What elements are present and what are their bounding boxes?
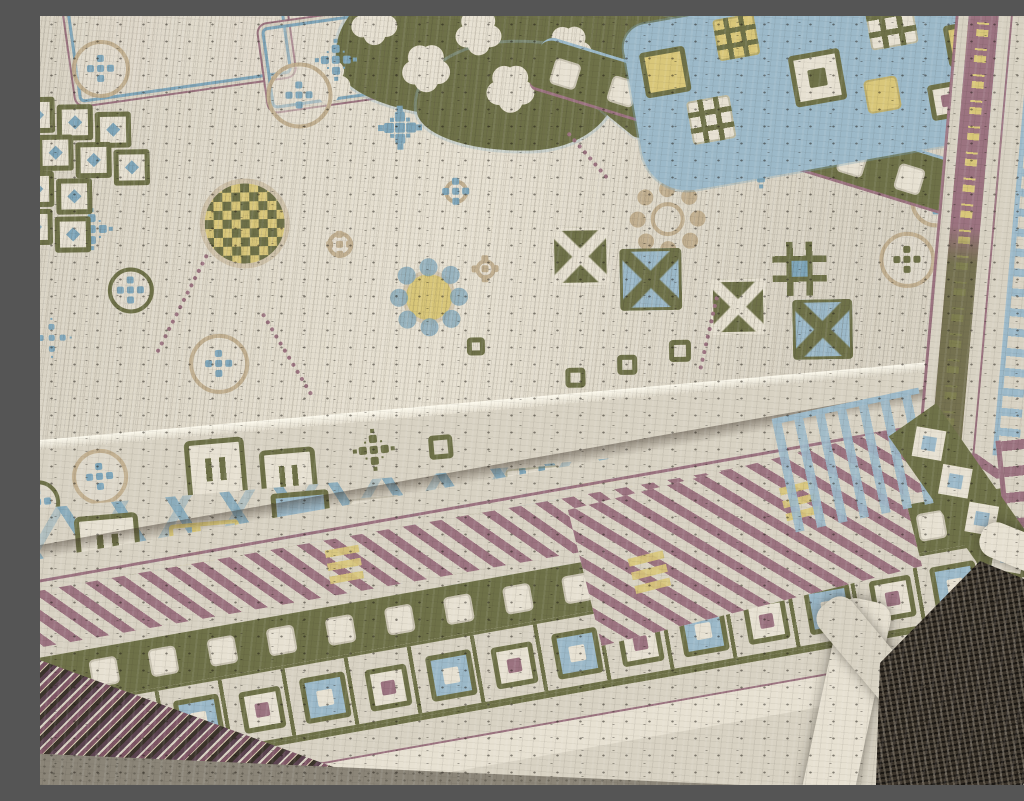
sqd-motif — [56, 178, 93, 215]
sq-outline-motif — [428, 434, 454, 460]
sq-solid-motif — [325, 614, 357, 646]
sq-hash-motif — [712, 16, 761, 62]
ring-motif — [475, 259, 495, 279]
sqd-motif — [113, 149, 150, 186]
x-square — [710, 278, 767, 335]
rosette-ring — [266, 62, 333, 129]
sq-solid-motif — [863, 75, 902, 114]
ring-motif — [70, 447, 131, 508]
sq-solid-motif — [265, 624, 297, 656]
yellow-fret — [325, 545, 364, 584]
sq-solid-motif — [147, 645, 179, 677]
rosette-ring — [879, 231, 936, 288]
branch-square — [893, 162, 927, 196]
chain-diamond — [912, 426, 947, 461]
sq-outline-motif — [669, 340, 691, 362]
checker-rosette — [204, 183, 285, 264]
rug-photograph — [40, 16, 1024, 785]
snowflake-motif — [40, 323, 67, 354]
x-square — [792, 299, 853, 360]
x-square — [619, 248, 682, 311]
yellow-fret — [628, 550, 672, 594]
rosette-ring — [107, 267, 154, 314]
sq-outline-motif — [490, 641, 539, 690]
sq-hash-motif — [863, 16, 919, 51]
sq-solid-motif — [206, 635, 238, 667]
sq-outline-motif — [299, 671, 352, 724]
ring-motif — [444, 180, 468, 204]
sqd-motif — [40, 134, 74, 171]
sq-outline-motif — [364, 663, 413, 712]
ring-motif — [327, 232, 353, 258]
sq-outline-motif — [467, 337, 485, 355]
dotted-vine — [566, 132, 608, 180]
sq-hash-motif — [686, 94, 737, 145]
branch-square — [548, 57, 582, 91]
cross-motif — [355, 431, 392, 468]
sq-outline-motif — [238, 686, 287, 735]
sq-solid-motif — [502, 583, 534, 615]
sq-outline-motif — [639, 45, 692, 98]
sqd-motif — [40, 171, 54, 208]
sq-outline-motif — [617, 355, 637, 375]
pomegranate-ring — [189, 333, 250, 394]
sqd-motif — [40, 209, 53, 246]
stepped-cluster-square — [40, 97, 55, 134]
sqd-motif — [55, 216, 92, 253]
sq-outline-motif — [425, 649, 478, 702]
dotted-vine — [261, 312, 313, 395]
hash-snowflake — [772, 241, 827, 296]
sq-outline-motif — [787, 48, 847, 108]
yellow-rosette — [387, 256, 470, 339]
x-square — [551, 227, 610, 286]
sq-outline-motif — [551, 627, 604, 680]
chain-diamond — [938, 464, 973, 499]
snowflake-motif — [377, 104, 424, 151]
sqd-motif — [75, 142, 112, 179]
sq-solid-motif — [443, 593, 475, 625]
sq-solid-motif — [384, 603, 416, 635]
sq-outline-motif — [565, 368, 585, 388]
